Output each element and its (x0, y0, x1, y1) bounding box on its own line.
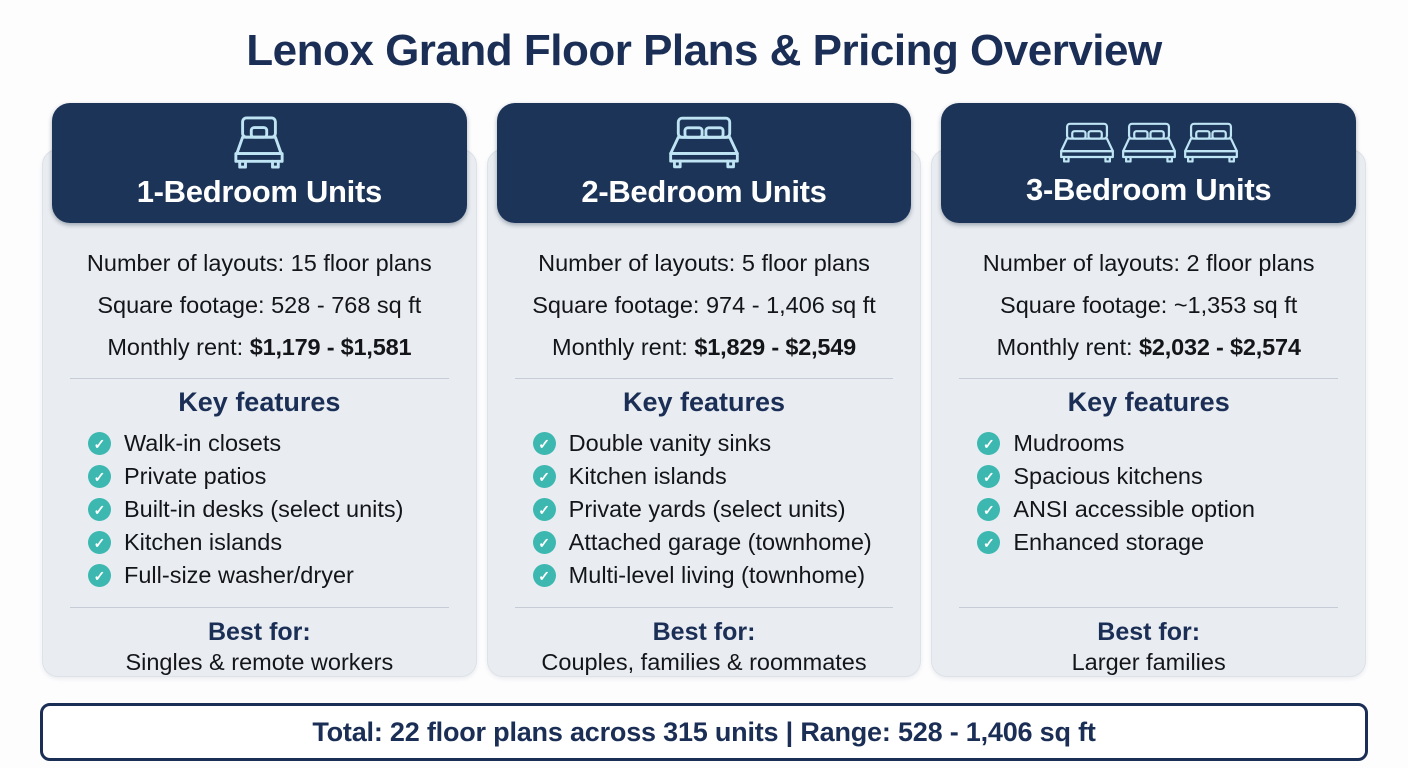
feature-item: ✓ANSI accessible option (977, 493, 1356, 526)
feature-label: Multi-level living (townhome) (569, 559, 865, 592)
features-title: Key features (487, 387, 922, 417)
card-header-2-bedroom: 2-Bedroom Units (497, 103, 912, 223)
feature-label: Double vanity sinks (569, 427, 771, 460)
best-for-label: Best for: (42, 618, 477, 646)
check-icon: ✓ (88, 498, 111, 521)
single-bed-icon (226, 116, 292, 170)
divider (515, 607, 894, 608)
feature-item: ✓Multi-level living (townhome) (533, 559, 912, 592)
page-title: Lenox Grand Floor Plans & Pricing Overvi… (0, 0, 1408, 76)
footer-total-bar: Total: 22 floor plans across 315 units |… (40, 703, 1368, 761)
feature-label: Enhanced storage (1013, 526, 1204, 559)
stat-sqft: Square footage: ~1,353 sq ft (931, 284, 1366, 326)
feature-item: ✓Attached garage (townhome) (533, 526, 912, 559)
check-icon: ✓ (88, 531, 111, 554)
check-icon: ✓ (977, 498, 1000, 521)
check-icon: ✓ (88, 465, 111, 488)
stat-sqft: Square footage: 974 - 1,406 sq ft (487, 284, 922, 326)
footer-total-text: Total: 22 floor plans across 315 units |… (312, 717, 1095, 748)
features-title: Key features (42, 387, 477, 417)
card-body: Number of layouts: 15 floor plans Square… (42, 223, 477, 676)
check-icon: ✓ (88, 564, 111, 587)
card-body: Number of layouts: 2 floor plans Square … (931, 223, 1366, 676)
stats-block: Number of layouts: 5 floor plans Square … (487, 223, 922, 368)
feature-label: Spacious kitchens (1013, 460, 1202, 493)
feature-item: ✓Walk-in closets (88, 427, 467, 460)
check-icon: ✓ (977, 465, 1000, 488)
feature-item: ✓Mudrooms (977, 427, 1356, 460)
features-list: ✓Mudrooms ✓Spacious kitchens ✓ANSI acces… (931, 427, 1366, 599)
stat-layouts: Number of layouts: 2 floor plans (931, 242, 1366, 284)
unit-card-1-bedroom: 1-Bedroom Units Number of layouts: 15 fl… (42, 103, 477, 677)
feature-item: ✓Kitchen islands (88, 526, 467, 559)
feature-label: Full-size washer/dryer (124, 559, 354, 592)
feature-item: ✓Private patios (88, 460, 467, 493)
feature-label: Built-in desks (select units) (124, 493, 404, 526)
card-header-1-bedroom: 1-Bedroom Units (52, 103, 467, 223)
feature-label: Kitchen islands (124, 526, 282, 559)
feature-item: ✓Kitchen islands (533, 460, 912, 493)
feature-label: Kitchen islands (569, 460, 727, 493)
unit-card-2-bedroom: 2-Bedroom Units Number of layouts: 5 flo… (487, 103, 922, 677)
feature-item: ✓Spacious kitchens (977, 460, 1356, 493)
best-for-value: Singles & remote workers (42, 648, 477, 676)
features-list: ✓Walk-in closets ✓Private patios ✓Built-… (42, 427, 477, 599)
stat-layouts: Number of layouts: 5 floor plans (487, 242, 922, 284)
card-header-3-bedroom: 3-Bedroom Units (941, 103, 1356, 223)
check-icon: ✓ (977, 432, 1000, 455)
stat-sqft: Square footage: 528 - 768 sq ft (42, 284, 477, 326)
rent-value: $1,179 - $1,581 (250, 334, 412, 360)
feature-label: Mudrooms (1013, 427, 1124, 460)
check-icon: ✓ (977, 531, 1000, 554)
card-title: 1-Bedroom Units (137, 174, 382, 210)
feature-item: ✓Enhanced storage (977, 526, 1356, 559)
divider (70, 378, 449, 379)
unit-cards-row: 1-Bedroom Units Number of layouts: 15 fl… (42, 103, 1366, 677)
rent-value: $1,829 - $2,549 (694, 334, 856, 360)
features-list: ✓Double vanity sinks ✓Kitchen islands ✓P… (487, 427, 922, 599)
divider (70, 607, 449, 608)
stats-block: Number of layouts: 2 floor plans Square … (931, 223, 1366, 368)
feature-label: Private patios (124, 460, 266, 493)
feature-item: ✓Full-size washer/dryer (88, 559, 467, 592)
card-body: Number of layouts: 5 floor plans Square … (487, 223, 922, 676)
feature-item: ✓Built-in desks (select units) (88, 493, 467, 526)
rent-label: Monthly rent: (997, 334, 1133, 360)
feature-label: Attached garage (townhome) (569, 526, 872, 559)
rent-value: $2,032 - $2,574 (1139, 334, 1301, 360)
divider (959, 378, 1338, 379)
best-for-value: Larger families (931, 648, 1366, 676)
feature-item: ✓Private yards (select units) (533, 493, 912, 526)
divider (959, 607, 1338, 608)
divider (515, 378, 894, 379)
stats-block: Number of layouts: 15 floor plans Square… (42, 223, 477, 368)
best-for-value: Couples, families & roommates (487, 648, 922, 676)
stat-rent: Monthly rent: $1,179 - $1,581 (42, 326, 477, 368)
stat-rent: Monthly rent: $1,829 - $2,549 (487, 326, 922, 368)
double-bed-icon (664, 116, 744, 170)
card-title: 2-Bedroom Units (581, 174, 826, 210)
unit-card-3-bedroom: 3-Bedroom Units Number of layouts: 2 flo… (931, 103, 1366, 677)
check-icon: ✓ (533, 465, 556, 488)
feature-label: Walk-in closets (124, 427, 281, 460)
stat-rent: Monthly rent: $2,032 - $2,574 (931, 326, 1366, 368)
check-icon: ✓ (88, 432, 111, 455)
check-icon: ✓ (533, 531, 556, 554)
feature-label: ANSI accessible option (1013, 493, 1255, 526)
card-title: 3-Bedroom Units (1026, 172, 1271, 208)
rent-label: Monthly rent: (552, 334, 688, 360)
check-icon: ✓ (533, 564, 556, 587)
check-icon: ✓ (533, 498, 556, 521)
feature-label: Private yards (select units) (569, 493, 846, 526)
check-icon: ✓ (533, 432, 556, 455)
best-for-label: Best for: (931, 618, 1366, 646)
stat-layouts: Number of layouts: 15 floor plans (42, 242, 477, 284)
features-title: Key features (931, 387, 1366, 417)
triple-bed-icon (1056, 118, 1242, 168)
feature-item: ✓Double vanity sinks (533, 427, 912, 460)
rent-label: Monthly rent: (107, 334, 243, 360)
best-for-label: Best for: (487, 618, 922, 646)
